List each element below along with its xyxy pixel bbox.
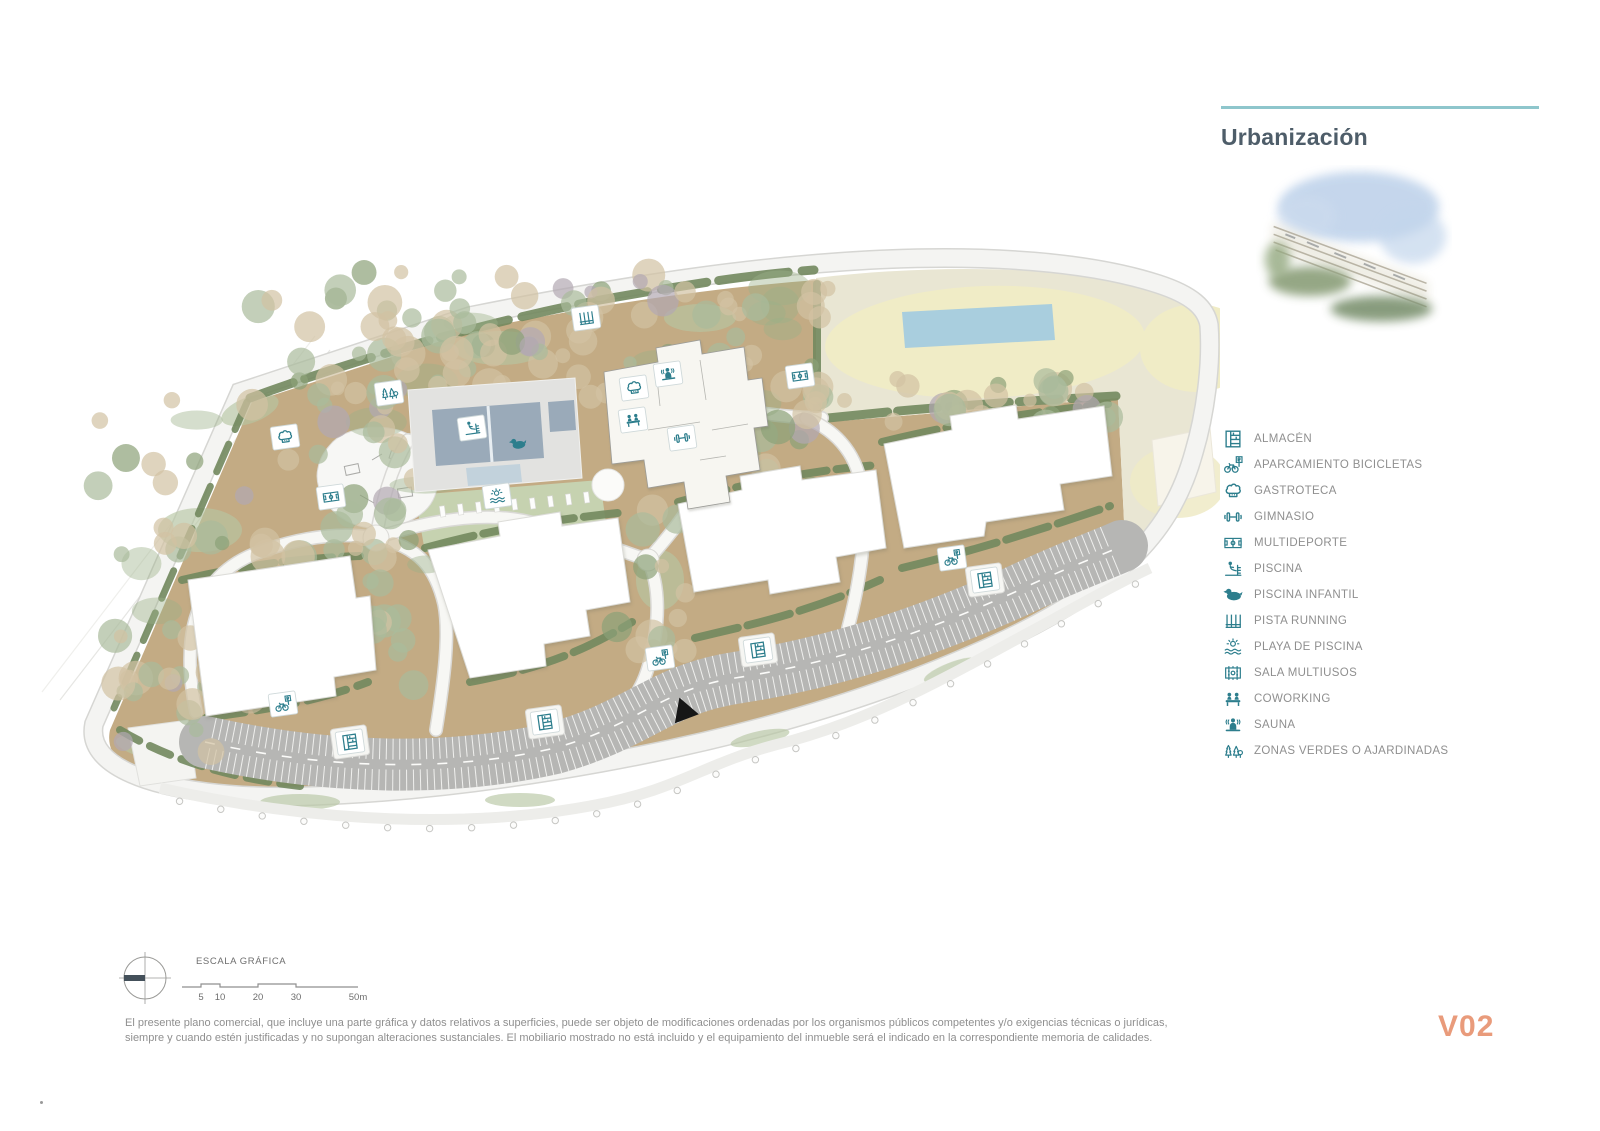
brochure-page: Urbanización ALMACÉNAPARCAMIENTO BICICLE… bbox=[0, 0, 1600, 1131]
legend-label: PISCINA bbox=[1254, 563, 1302, 575]
legend-label: PISCINA INFANTIL bbox=[1254, 589, 1359, 601]
legend-item-almacen: ALMACÉN bbox=[1222, 430, 1552, 448]
legend-item-coworking: COWORKING bbox=[1222, 690, 1552, 708]
version-label: V02 bbox=[1438, 1010, 1494, 1044]
legend-item-gastroteca: GASTROTECA bbox=[1222, 482, 1552, 500]
svg-text:10: 10 bbox=[215, 992, 226, 1003]
piscina-infantil-icon bbox=[1222, 584, 1244, 606]
bicicletas-icon bbox=[1222, 454, 1244, 476]
legend-item-gimnasio: GIMNASIO bbox=[1222, 508, 1552, 526]
legend-item-piscina-infantil: PISCINA INFANTIL bbox=[1222, 586, 1552, 604]
map-icon-zonas-verdes bbox=[374, 380, 404, 407]
pista-running-icon bbox=[1222, 610, 1244, 632]
legend-label: APARCAMIENTO BICICLETAS bbox=[1254, 459, 1422, 471]
terrace-circle bbox=[592, 469, 624, 501]
map-icon-gastroteca bbox=[270, 424, 300, 451]
north-compass bbox=[119, 952, 171, 1004]
title-rule bbox=[1221, 106, 1539, 109]
almacen-icon bbox=[1222, 428, 1244, 450]
gastroteca-icon bbox=[1222, 480, 1244, 502]
legend-item-sala-multiusos: SALA MULTIUSOS bbox=[1222, 664, 1552, 682]
map-icon-bicicletas bbox=[937, 545, 967, 572]
map-icon-gastroteca bbox=[619, 375, 649, 402]
gimnasio-icon bbox=[1222, 506, 1244, 528]
legend-label: ALMACÉN bbox=[1254, 433, 1312, 445]
legend-label: SAUNA bbox=[1254, 719, 1295, 731]
legend-label: GASTROTECA bbox=[1254, 485, 1337, 497]
legend-label: GIMNASIO bbox=[1254, 511, 1314, 523]
legend-item-pista-running: PISTA RUNNING bbox=[1222, 612, 1552, 630]
legend-label: PISTA RUNNING bbox=[1254, 615, 1347, 627]
scale-bar bbox=[182, 984, 358, 987]
map-icon-bicicletas bbox=[268, 691, 298, 718]
svg-text:5: 5 bbox=[198, 992, 203, 1003]
legend-label: COWORKING bbox=[1254, 693, 1331, 705]
legend-label: PLAYA DE PISCINA bbox=[1254, 641, 1363, 653]
map-icon-multideporte bbox=[785, 363, 815, 390]
zonas-verdes-icon bbox=[1222, 740, 1244, 762]
legal-disclaimer: El presente plano comercial, que incluye… bbox=[125, 1016, 1175, 1045]
piscina-icon bbox=[1222, 558, 1244, 580]
sauna-icon bbox=[1222, 714, 1244, 736]
legend-item-bicicletas: APARCAMIENTO BICICLETAS bbox=[1222, 456, 1552, 474]
legend-item-zonas-verdes: ZONAS VERDES O AJARDINADAS bbox=[1222, 742, 1552, 760]
multideporte-icon bbox=[1222, 532, 1244, 554]
map-icon-coworking bbox=[618, 407, 648, 434]
small-pool bbox=[548, 400, 576, 432]
map-icon-piscina bbox=[457, 415, 487, 442]
legend-item-sauna: SAUNA bbox=[1222, 716, 1552, 734]
map-icon-almacen bbox=[738, 633, 778, 668]
legend-label: ZONAS VERDES O AJARDINADAS bbox=[1254, 745, 1448, 757]
page-dot bbox=[40, 1101, 43, 1104]
playa-piscina-icon bbox=[1222, 636, 1244, 658]
scale-label: ESCALA GRÁFICA bbox=[196, 956, 286, 967]
legend-label: MULTIDEPORTE bbox=[1254, 537, 1347, 549]
site-plan-map bbox=[0, 230, 1220, 850]
legend-label: SALA MULTIUSOS bbox=[1254, 667, 1357, 679]
sala-multiusos-icon bbox=[1222, 662, 1244, 684]
svg-text:20: 20 bbox=[253, 992, 264, 1003]
legend-item-playa-piscina: PLAYA DE PISCINA bbox=[1222, 638, 1552, 656]
scale-ticks: 510203050m bbox=[198, 992, 367, 1003]
map-icon-almacen bbox=[525, 705, 565, 740]
map-icon-sauna bbox=[653, 361, 683, 388]
map-icon-gimnasio bbox=[667, 425, 697, 452]
legend-item-piscina: PISCINA bbox=[1222, 560, 1552, 578]
coworking-icon bbox=[1222, 688, 1244, 710]
page-title: Urbanización bbox=[1221, 124, 1368, 151]
map-legend: ALMACÉNAPARCAMIENTO BICICLETASGASTROTECA… bbox=[1222, 430, 1552, 760]
map-icon-bicicletas bbox=[645, 645, 675, 672]
map-icon-pista-running bbox=[571, 305, 601, 332]
map-icon-almacen bbox=[330, 725, 370, 760]
building-watercolor-render bbox=[1256, 165, 1452, 333]
scale-graphic: ESCALA GRÁFICA 510203050m bbox=[112, 938, 412, 1016]
svg-text:50m: 50m bbox=[349, 992, 368, 1003]
map-icon-multideporte bbox=[316, 484, 346, 511]
map-icon-playa-piscina bbox=[482, 483, 512, 510]
legend-item-multideporte: MULTIDEPORTE bbox=[1222, 534, 1552, 552]
svg-text:30: 30 bbox=[291, 992, 302, 1003]
map-icon-almacen bbox=[965, 563, 1005, 598]
